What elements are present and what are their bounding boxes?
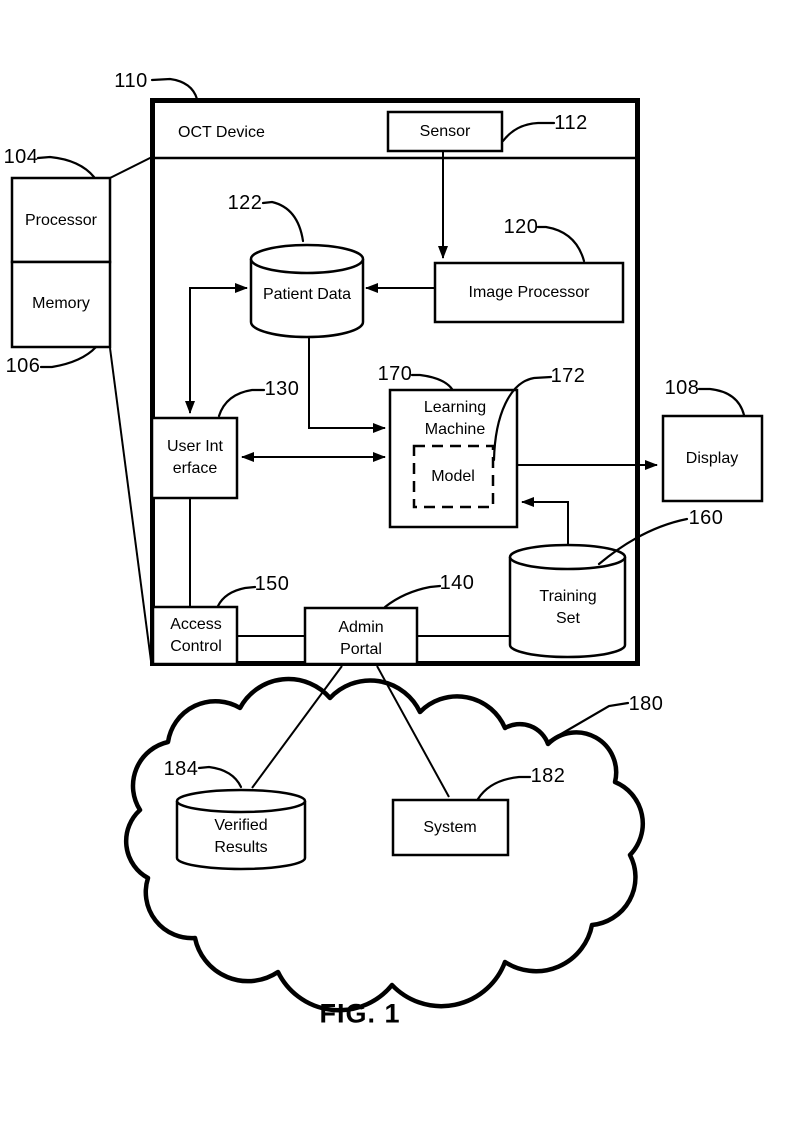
ref-130: 130 <box>265 376 300 404</box>
training-set-label: Training Set <box>533 586 603 630</box>
ref-170: 170 <box>378 361 413 389</box>
ref-160: 160 <box>689 505 724 533</box>
leader-106 <box>41 347 96 367</box>
figure-canvas: OCT Device Sensor Processor Memory Patie… <box>0 0 802 1134</box>
projection-line-bottom <box>110 348 151 661</box>
sensor-label: Sensor <box>420 121 471 143</box>
ref-184: 184 <box>164 756 199 784</box>
ref-180: 180 <box>629 691 664 719</box>
ref-104: 104 <box>4 144 39 172</box>
admin-portal-label: Admin Portal <box>331 617 391 661</box>
ref-106: 106 <box>6 353 41 381</box>
processor-label: Processor <box>25 210 97 232</box>
projection-line-top <box>110 157 152 178</box>
ref-122: 122 <box>228 190 263 218</box>
leader-104 <box>38 157 94 177</box>
figure-caption: FIG. 1 <box>319 995 400 1032</box>
ref-120: 120 <box>504 214 539 242</box>
ref-108: 108 <box>665 375 700 403</box>
ref-140: 140 <box>440 570 475 598</box>
system-label: System <box>423 817 476 839</box>
access-control-label: Access Control <box>161 614 231 658</box>
verified-results-label: Verified Results <box>201 815 281 859</box>
patient-data-label: Patient Data <box>263 284 351 306</box>
learning-machine-label: Learning Machine <box>410 397 500 441</box>
ref-112: 112 <box>554 110 587 138</box>
diagram-geometry <box>0 0 802 1134</box>
ref-150: 150 <box>255 571 290 599</box>
memory-label: Memory <box>32 293 90 315</box>
model-label: Model <box>431 466 475 488</box>
user-interface-label: User Interface <box>166 436 224 480</box>
ref-182: 182 <box>531 763 566 791</box>
display-label: Display <box>686 448 738 470</box>
ref-172: 172 <box>551 363 586 391</box>
leader-108 <box>699 389 744 415</box>
ref-110: 110 <box>114 68 147 96</box>
image-processor-label: Image Processor <box>469 282 590 304</box>
oct-device-label: OCT Device <box>178 122 265 144</box>
leader-110 <box>152 79 197 99</box>
